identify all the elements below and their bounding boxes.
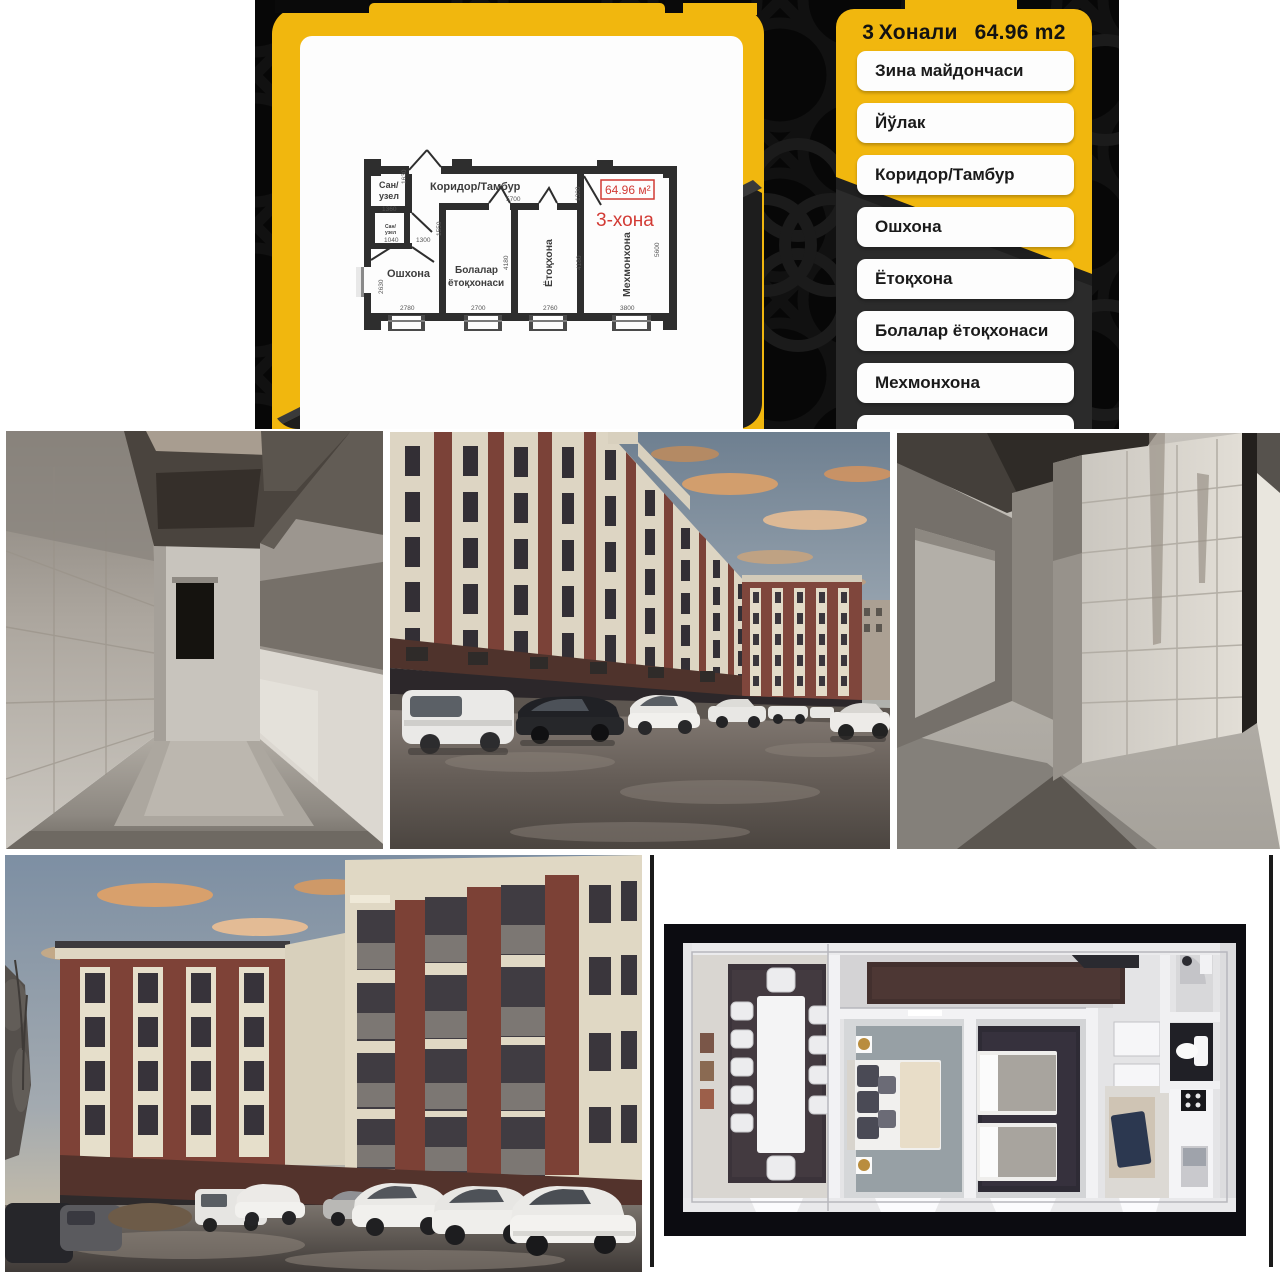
svg-text:2780: 2780 xyxy=(400,305,415,312)
svg-text:5600: 5600 xyxy=(654,242,661,257)
svg-text:Ошхона: Ошхона xyxy=(387,268,431,280)
svg-text:4180: 4180 xyxy=(576,255,583,270)
svg-text:2760: 2760 xyxy=(543,305,558,312)
svg-text:1630: 1630 xyxy=(401,169,408,184)
svg-text:64.96 м²: 64.96 м² xyxy=(605,183,651,197)
svg-text:5700: 5700 xyxy=(506,196,521,203)
svg-text:4180: 4180 xyxy=(503,255,510,270)
svg-text:2630: 2630 xyxy=(378,279,385,294)
svg-text:узел: узел xyxy=(379,191,399,201)
svg-text:1300: 1300 xyxy=(416,237,431,244)
svg-text:Ётоқхона: Ётоқхона xyxy=(542,239,555,287)
svg-text:Болалар: Болалар xyxy=(455,265,498,276)
svg-text:2700: 2700 xyxy=(471,305,486,312)
svg-text:Сан/: Сан/ xyxy=(379,180,399,190)
svg-text:ётоқхонаси: ётоқхонаси xyxy=(448,278,504,289)
svg-text:1300: 1300 xyxy=(575,186,582,201)
svg-text:3-хона: 3-хона xyxy=(596,210,654,231)
svg-text:1550: 1550 xyxy=(436,221,443,236)
svg-text:1040: 1040 xyxy=(384,237,399,244)
svg-text:1360: 1360 xyxy=(382,206,397,213)
svg-text:3800: 3800 xyxy=(620,305,635,312)
svg-text:узел: узел xyxy=(385,230,396,236)
svg-text:Мехмонхона: Мехмонхона xyxy=(621,232,633,297)
svg-text:Коридор/Тамбур: Коридор/Тамбур xyxy=(430,181,521,193)
